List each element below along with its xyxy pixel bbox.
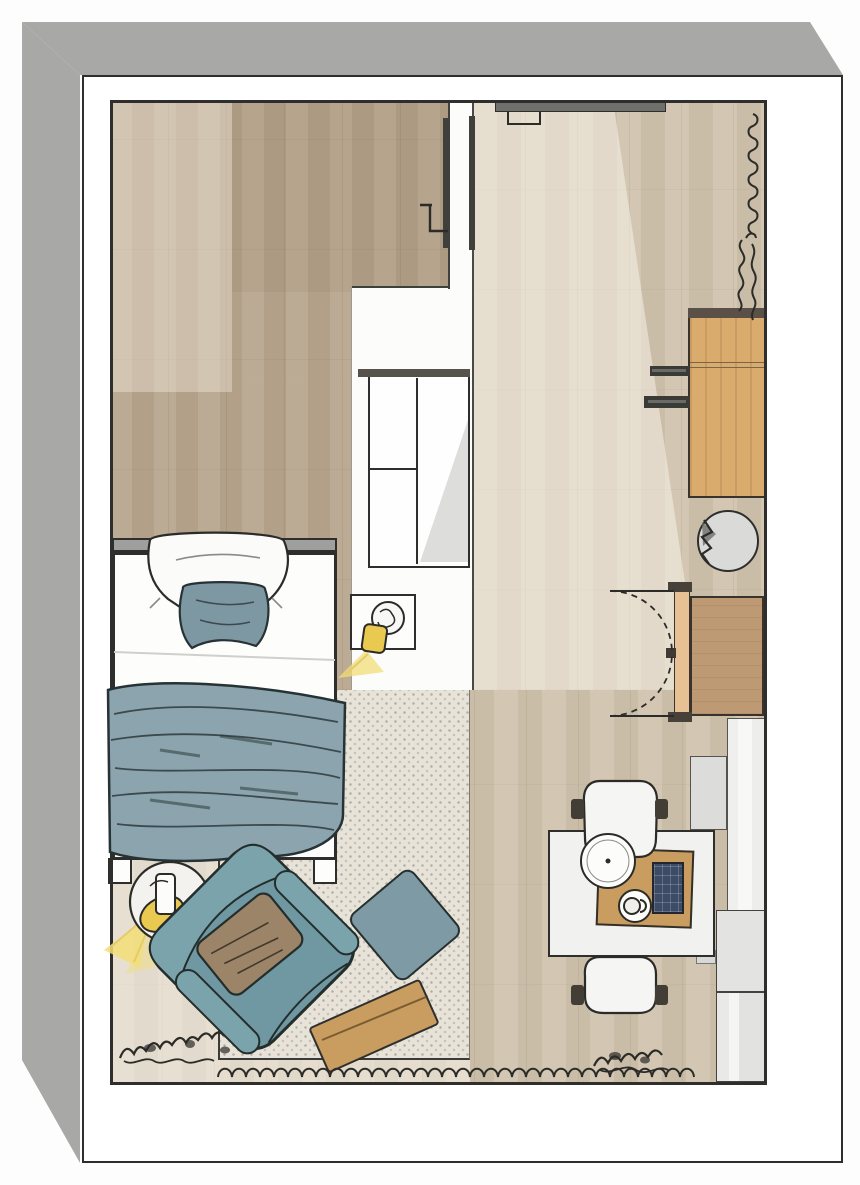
- partition-door: [420, 116, 475, 250]
- wardrobe-swing-doors: [610, 591, 674, 716]
- radiator-squiggle: [749, 114, 758, 234]
- bottom-wave-line: [218, 1069, 694, 1077]
- closet-shadow: [420, 420, 468, 562]
- plant-bottom-left: [120, 1032, 230, 1062]
- dining-chair-bottom: [571, 957, 668, 1013]
- plant-right-wall: [738, 234, 756, 321]
- sheet-fold: [114, 652, 335, 660]
- floorplan-canvas: [0, 0, 860, 1185]
- desk-brackets: [644, 366, 690, 408]
- entry-door-handle: [508, 112, 540, 124]
- duvet: [108, 683, 345, 861]
- round-table-sketch: [702, 520, 716, 564]
- nightstand-lamp: [338, 602, 404, 678]
- pillow-teal: [180, 582, 269, 648]
- board-seam: [322, 997, 426, 1040]
- sketch-overlay: [0, 0, 860, 1185]
